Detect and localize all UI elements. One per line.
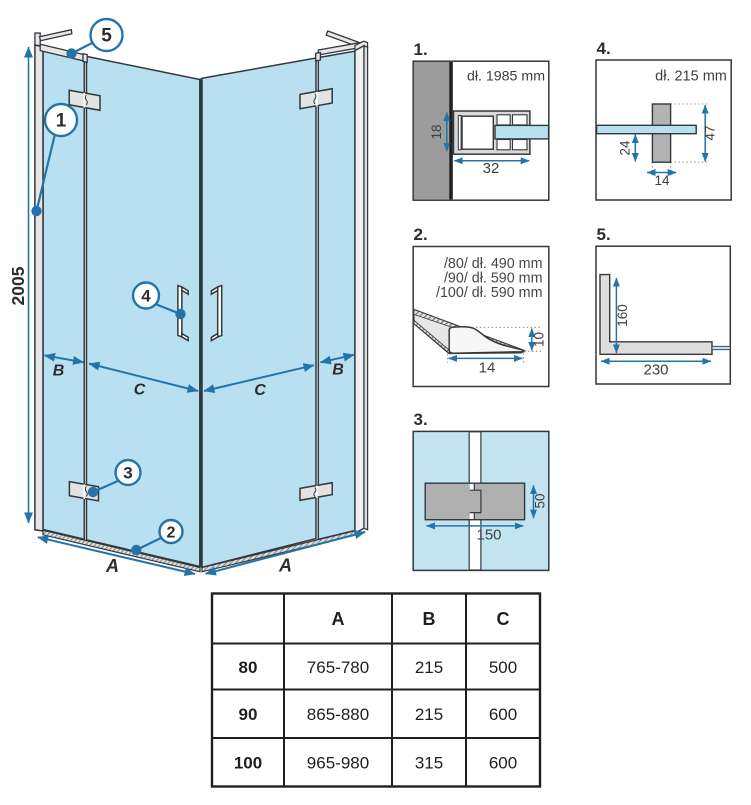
- svg-text:3: 3: [123, 464, 132, 483]
- svg-text:160: 160: [615, 304, 630, 327]
- svg-text:600: 600: [489, 754, 517, 773]
- svg-text:2: 2: [167, 525, 176, 542]
- svg-text:C: C: [134, 382, 146, 399]
- svg-text:/100/ dł. 590 mm: /100/ dł. 590 mm: [436, 285, 543, 301]
- svg-text:24: 24: [618, 140, 633, 156]
- svg-text:C: C: [254, 382, 266, 399]
- svg-text:32: 32: [483, 160, 500, 177]
- svg-text:C: C: [497, 609, 510, 629]
- svg-text:A: A: [332, 609, 345, 629]
- svg-text:2005: 2005: [8, 266, 28, 305]
- svg-text:100: 100: [234, 754, 262, 773]
- svg-text:50: 50: [533, 493, 548, 508]
- svg-text:600: 600: [489, 705, 517, 724]
- svg-text:865-880: 865-880: [307, 705, 369, 724]
- svg-text:B: B: [53, 363, 65, 380]
- svg-text:dł. 215 mm: dł. 215 mm: [655, 69, 727, 85]
- svg-text:14: 14: [654, 173, 670, 188]
- svg-text:4.: 4.: [597, 39, 611, 58]
- svg-text:14: 14: [479, 360, 496, 377]
- svg-text:230: 230: [643, 362, 668, 379]
- svg-text:215: 215: [415, 658, 443, 677]
- svg-text:10: 10: [532, 332, 547, 347]
- svg-text:5.: 5.: [597, 225, 611, 244]
- svg-text:315: 315: [415, 754, 443, 773]
- svg-text:215: 215: [415, 705, 443, 724]
- svg-text:5: 5: [101, 26, 112, 47]
- svg-text:B: B: [423, 609, 436, 629]
- svg-text:A: A: [105, 556, 119, 576]
- svg-text:500: 500: [489, 658, 517, 677]
- svg-text:2.: 2.: [414, 225, 428, 244]
- svg-text:3.: 3.: [414, 410, 428, 429]
- svg-text:965-980: 965-980: [307, 754, 369, 773]
- svg-text:1: 1: [56, 111, 67, 132]
- svg-text:765-780: 765-780: [307, 658, 369, 677]
- svg-text:dł. 1985 mm: dł. 1985 mm: [467, 69, 545, 85]
- svg-text:B: B: [332, 362, 344, 379]
- svg-text:80: 80: [239, 658, 258, 677]
- svg-text:1.: 1.: [414, 40, 428, 59]
- svg-text:150: 150: [476, 527, 501, 544]
- svg-text:90: 90: [239, 705, 258, 724]
- svg-text:18: 18: [429, 124, 444, 139]
- svg-text:47: 47: [703, 125, 718, 140]
- svg-text:4: 4: [141, 287, 151, 306]
- svg-text:A: A: [278, 556, 292, 576]
